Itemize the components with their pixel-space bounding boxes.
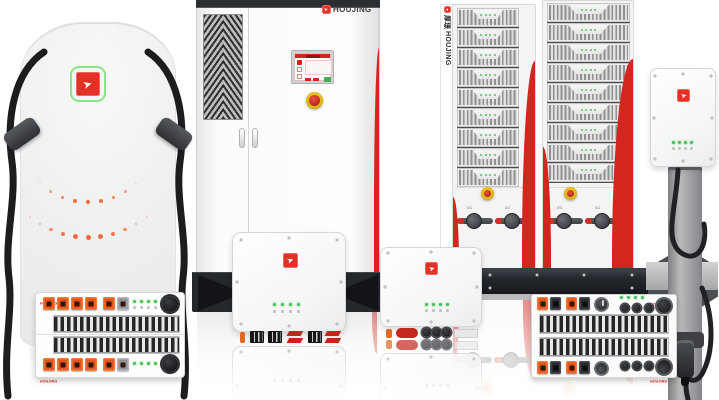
dc-connector-icon <box>566 361 577 374</box>
dc-connector-icon <box>537 361 548 374</box>
terminal-round-icon <box>621 362 629 370</box>
round-connector-icon <box>657 299 671 313</box>
terminal-round-icon <box>633 304 641 312</box>
terminal-round-icon <box>621 304 629 312</box>
dc-connector-icon <box>579 361 590 374</box>
module-brand-bottom: HOUJING <box>650 371 689 389</box>
rectifier-module-right[interactable]: HOUJING HOUJING <box>0 0 719 400</box>
product-showcase: ➤ ➤ HOUJING <box>0 0 719 400</box>
dc-connector-icon <box>550 297 561 310</box>
dc-connector-icon <box>550 361 561 374</box>
rotary-knob-icon[interactable] <box>594 361 609 376</box>
dc-connector-icon <box>537 297 548 310</box>
vent-grille <box>539 337 669 357</box>
terminal-round-icon <box>645 362 653 370</box>
vent-grille <box>539 314 669 334</box>
terminal-round-icon <box>633 362 641 370</box>
rotary-knob-icon[interactable] <box>594 297 609 312</box>
dc-connector-icon <box>566 297 577 310</box>
dc-connector-icon <box>579 297 590 310</box>
terminal-round-icon <box>645 304 653 312</box>
